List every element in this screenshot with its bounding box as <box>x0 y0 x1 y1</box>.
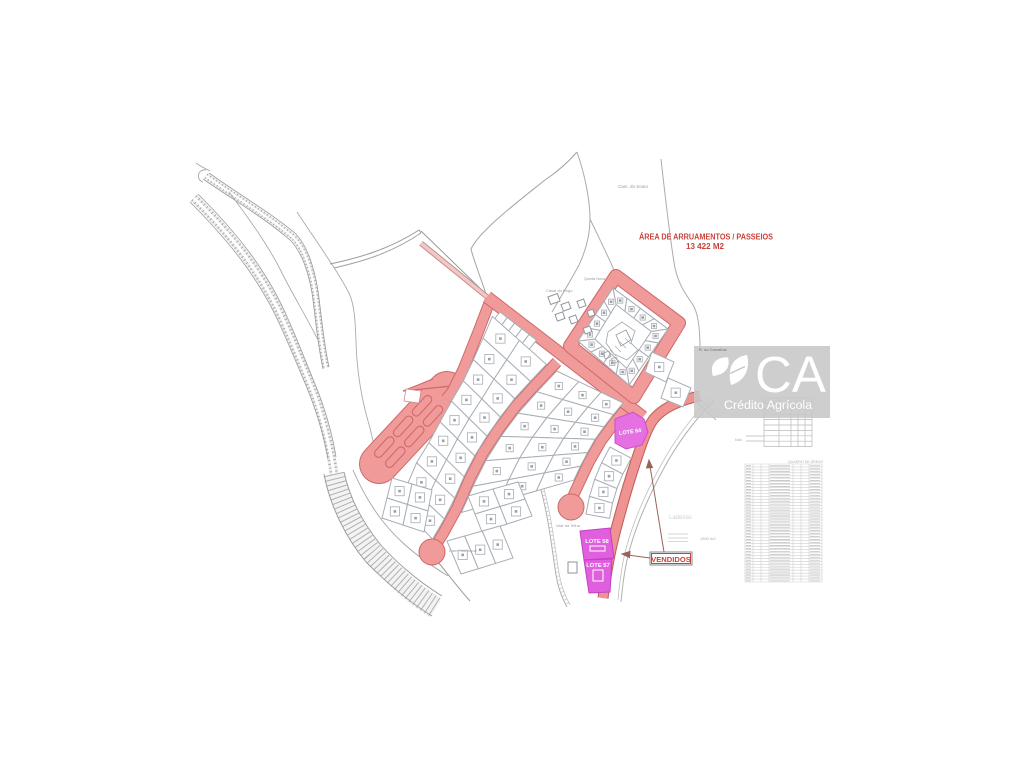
svg-text:LOTE 57: LOTE 57 <box>586 563 610 569</box>
svg-text:Cam. municipal: Cam. municipal <box>449 548 477 553</box>
svg-text:VENDIDOS: VENDIDOS <box>651 555 691 564</box>
svg-text:ÁREA DE ARRUAMENTOS / PASSEIOS: ÁREA DE ARRUAMENTOS / PASSEIOS <box>639 233 774 242</box>
svg-text:LOTE 58: LOTE 58 <box>585 539 609 545</box>
svg-text:R. do Carvalhal: R. do Carvalhal <box>699 347 727 352</box>
svg-text:Quinta Nova: Quinta Nova <box>584 277 606 281</box>
svg-text:total: total <box>735 438 742 442</box>
svg-text:1500 m2: 1500 m2 <box>700 536 716 541</box>
svg-text:Casal do Rego: Casal do Rego <box>546 288 573 293</box>
svg-text:CA: CA <box>755 346 826 403</box>
svg-text:Cam. do Souto: Cam. do Souto <box>618 184 649 189</box>
svg-text:Ladeiras: Ladeiras <box>669 515 692 521</box>
svg-text:Crédito Agrícola: Crédito Agrícola <box>724 398 812 412</box>
svg-text:Vale da Telha: Vale da Telha <box>556 523 581 528</box>
svg-text:QUADRO DE ÁREAS: QUADRO DE ÁREAS <box>788 460 824 464</box>
svg-text:13 422 M2: 13 422 M2 <box>686 242 725 251</box>
